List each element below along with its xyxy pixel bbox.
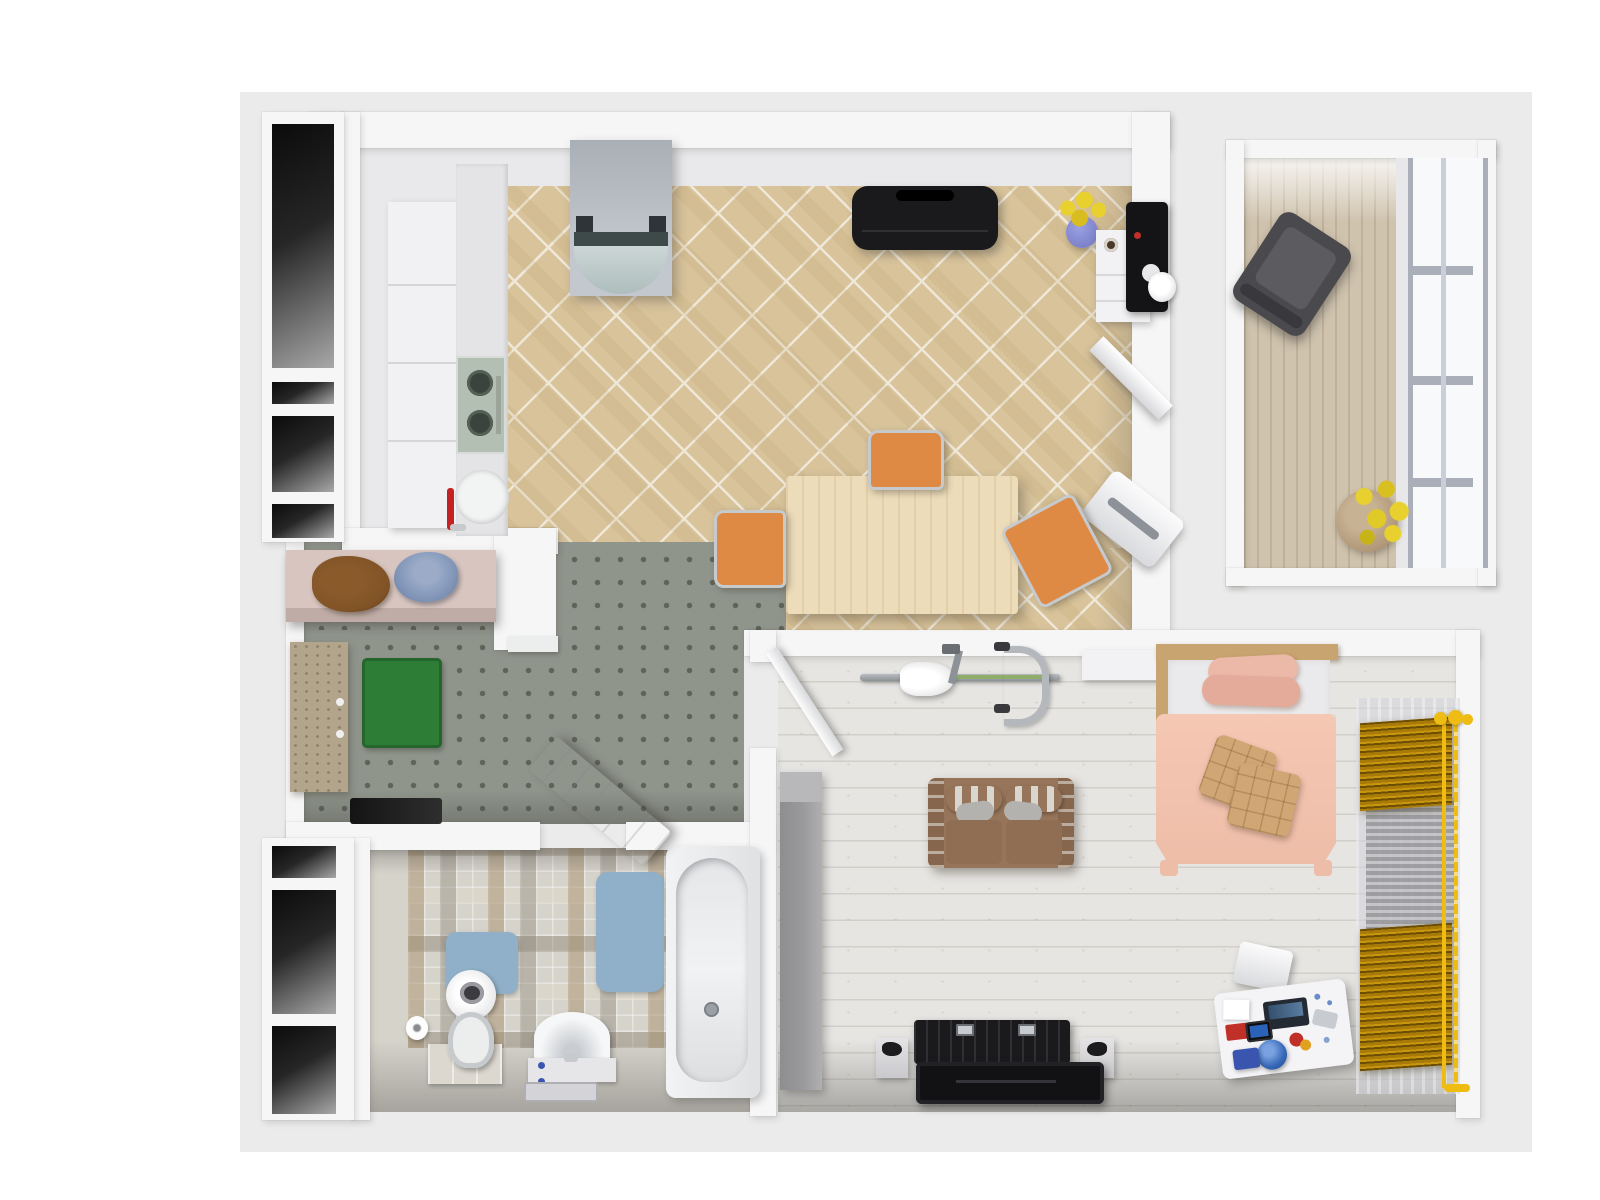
wall-stub-kitchen-hall	[494, 528, 556, 650]
lowboard-handle-slot	[896, 190, 954, 201]
tablet-screen	[1249, 1024, 1268, 1038]
cooktop	[456, 356, 506, 454]
exercise-bike	[852, 638, 1077, 722]
balcony-plant-flowers	[1348, 478, 1412, 552]
shaft-niche-7	[272, 1026, 336, 1114]
wall-balcony-south	[1226, 568, 1496, 586]
sofa-arm-left	[928, 778, 944, 868]
bike-pedal	[942, 644, 960, 654]
balcony-window	[1408, 158, 1488, 568]
tv-panel	[916, 1062, 1104, 1104]
desk-headphone-yellow	[1299, 1039, 1311, 1051]
console-handle-left	[956, 1024, 974, 1036]
wall-balcony-west	[1226, 140, 1244, 586]
front-door	[290, 642, 348, 792]
printer-slot	[1106, 496, 1160, 541]
burner-front	[467, 370, 493, 396]
fridge-door-shield	[574, 232, 668, 294]
speaker-left	[876, 1038, 908, 1078]
coffee-gauge	[1104, 238, 1118, 252]
burner-rear	[467, 410, 493, 436]
window-blind-amber-bottom	[1360, 923, 1452, 1071]
window-blind-amber-top	[1360, 717, 1452, 811]
wardrobe-top-cap	[780, 772, 822, 802]
toilet-bowl-hole	[460, 982, 484, 1004]
desk-gadget-silver	[1312, 1008, 1339, 1029]
bathtub	[666, 846, 760, 1098]
washbasin	[524, 1008, 616, 1098]
desk-globe	[1255, 1038, 1288, 1071]
bed-pillow-lower	[1202, 674, 1301, 707]
rod-end-bar	[1444, 1084, 1470, 1092]
wall-kitchen-north	[308, 112, 1170, 148]
desk	[1213, 978, 1354, 1079]
knit-rug-gray	[1366, 798, 1454, 932]
cabinet-divider-2	[388, 362, 456, 364]
sink-tap-chrome	[450, 524, 466, 531]
door-handle-2	[336, 730, 344, 738]
cabinet-divider-3	[388, 440, 456, 442]
bath-mat-large	[596, 872, 664, 992]
fridge-handle-notch-left	[576, 216, 593, 233]
bike-handlebar	[1004, 646, 1049, 726]
door-handle-1	[336, 698, 344, 706]
console-handle-right	[1018, 1024, 1036, 1036]
cabinet-divider-1	[388, 284, 456, 286]
media-console-black	[914, 1020, 1070, 1064]
curtain-rod-1	[1442, 718, 1446, 1088]
bed-foot-right	[1314, 860, 1332, 876]
dining-chair-top	[868, 430, 944, 490]
desk-doodle-dot-3	[1323, 1037, 1330, 1044]
window-mullion-vertical	[1441, 158, 1446, 568]
desk-doodle-dot-2	[1327, 1000, 1333, 1006]
shaft-niche-3	[272, 416, 334, 492]
bed-foot-left	[1160, 860, 1178, 876]
sofa-seat-left	[946, 820, 1002, 864]
refrigerator	[570, 140, 672, 296]
desk-paper	[1223, 999, 1249, 1019]
toilet-seat	[448, 1012, 494, 1068]
kitchen-upper-cabinets	[388, 202, 456, 528]
laptop-screen	[1268, 1002, 1303, 1020]
vase-flowers-yellow	[1058, 192, 1106, 232]
bike-grip-top	[994, 642, 1010, 651]
threshold-step	[508, 636, 558, 652]
dark-floor-mat	[350, 798, 442, 824]
shaft-niche-6	[272, 890, 336, 1014]
rod-knob-3	[1462, 714, 1473, 725]
sofa-seat-right	[1006, 820, 1062, 864]
dining-chair-left	[714, 510, 786, 588]
bike-grip-bottom	[994, 704, 1010, 713]
tv-panel-reflection	[956, 1080, 1056, 1083]
curtain-rod-2	[1454, 718, 1458, 1092]
desk-blue-box	[1232, 1047, 1260, 1070]
bike-seat	[900, 662, 954, 696]
wall-balcony-north	[1226, 140, 1496, 158]
bathtub-drain	[704, 1002, 719, 1017]
clothes-blue	[394, 552, 458, 602]
coffee-machine-red-light	[1134, 232, 1141, 239]
white-canister	[1148, 272, 1176, 302]
shaft-niche-2	[272, 382, 334, 404]
green-doormat	[362, 658, 442, 748]
rod-knob-2	[1448, 710, 1463, 725]
black-lowboard	[852, 186, 998, 250]
shaft-niche-5	[272, 846, 336, 878]
dining-table	[786, 476, 1018, 614]
basin-soap-blue-1	[538, 1062, 545, 1069]
basin-tray	[524, 1082, 598, 1102]
rod-knob-1	[1434, 712, 1447, 725]
floor-plan-canvas	[0, 0, 1600, 1200]
bathtub-inner	[676, 858, 748, 1082]
double-bed	[1156, 644, 1338, 880]
kitchen-sink	[455, 470, 509, 524]
sofa	[928, 778, 1074, 868]
wall-kitchen-west	[342, 112, 360, 556]
toilet-paper-roll	[406, 1016, 428, 1040]
clothes-pile-brown	[312, 556, 390, 612]
speaker-right-top	[1087, 1042, 1107, 1056]
toilet	[404, 960, 508, 1086]
wall-bathroom-west	[352, 838, 370, 1120]
lowboard-seam	[862, 230, 988, 232]
fridge-handle-notch-right	[649, 216, 666, 233]
wardrobe-gray	[780, 772, 822, 1090]
basin-faucet	[564, 1054, 578, 1062]
speaker-left-top	[882, 1042, 902, 1056]
cooktop-controls	[496, 376, 501, 434]
shaft-niche-4	[272, 504, 334, 538]
desk-doodle-dot-1	[1314, 993, 1321, 1000]
shaft-niche-1	[272, 124, 334, 368]
